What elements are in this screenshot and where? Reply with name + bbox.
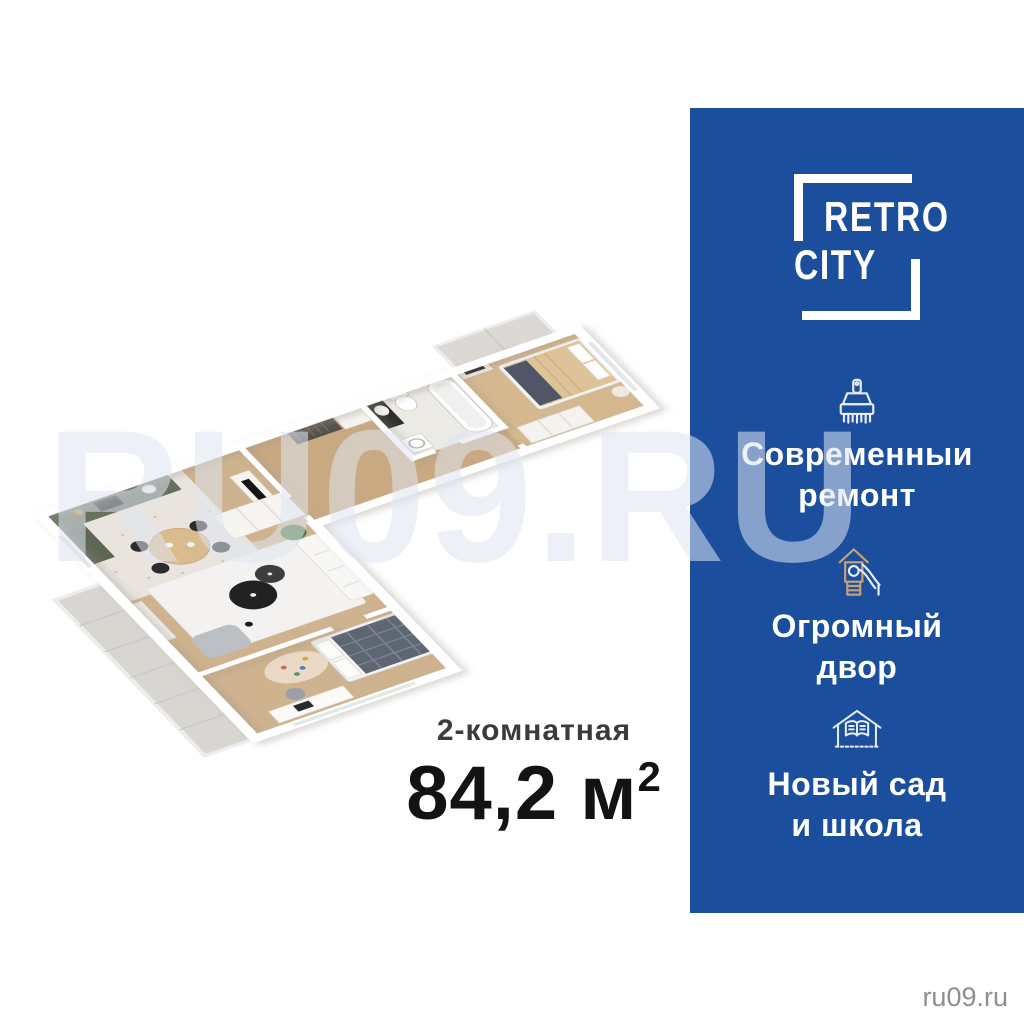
area-superscript: 2 — [637, 753, 661, 800]
feature-yard-line1: Огромный — [690, 606, 1024, 647]
feature-renovation: Современныи ремонт — [690, 378, 1024, 516]
paintbrush-icon — [831, 378, 883, 426]
site-credit: ru09.ru — [922, 982, 1008, 1013]
brand-logo: RETRO CITY — [794, 174, 920, 320]
brand-name-line2: CITY — [794, 244, 877, 286]
feature-renovation-line1: Современныи — [690, 434, 1024, 475]
school-icon — [828, 706, 886, 756]
feature-renovation-line2: ремонт — [690, 475, 1024, 516]
apartment-type-label: 2-комнатная — [366, 714, 702, 748]
feature-school-line1: Новый сад — [690, 764, 1024, 805]
brand-name-line1: RETRO — [824, 196, 950, 238]
promo-panel: RETRO CITY Современныи ремонт — [690, 108, 1024, 913]
advert-page: RU09.RU RETRO CITY Современныи ремонт — [0, 0, 1024, 1024]
feature-yard: Огромный двор — [690, 546, 1024, 688]
area-number: 84,2 — [406, 751, 558, 836]
apartment-area: 84,2 м2 — [366, 756, 702, 832]
feature-school-line2: и школа — [690, 805, 1024, 846]
feature-yard-line2: двор — [690, 647, 1024, 688]
area-unit: м — [558, 751, 637, 836]
listing-caption: 2-комнатная 84,2 м2 — [366, 714, 702, 832]
feature-school: Новый сад и школа — [690, 706, 1024, 846]
playground-slide-icon — [829, 546, 885, 598]
